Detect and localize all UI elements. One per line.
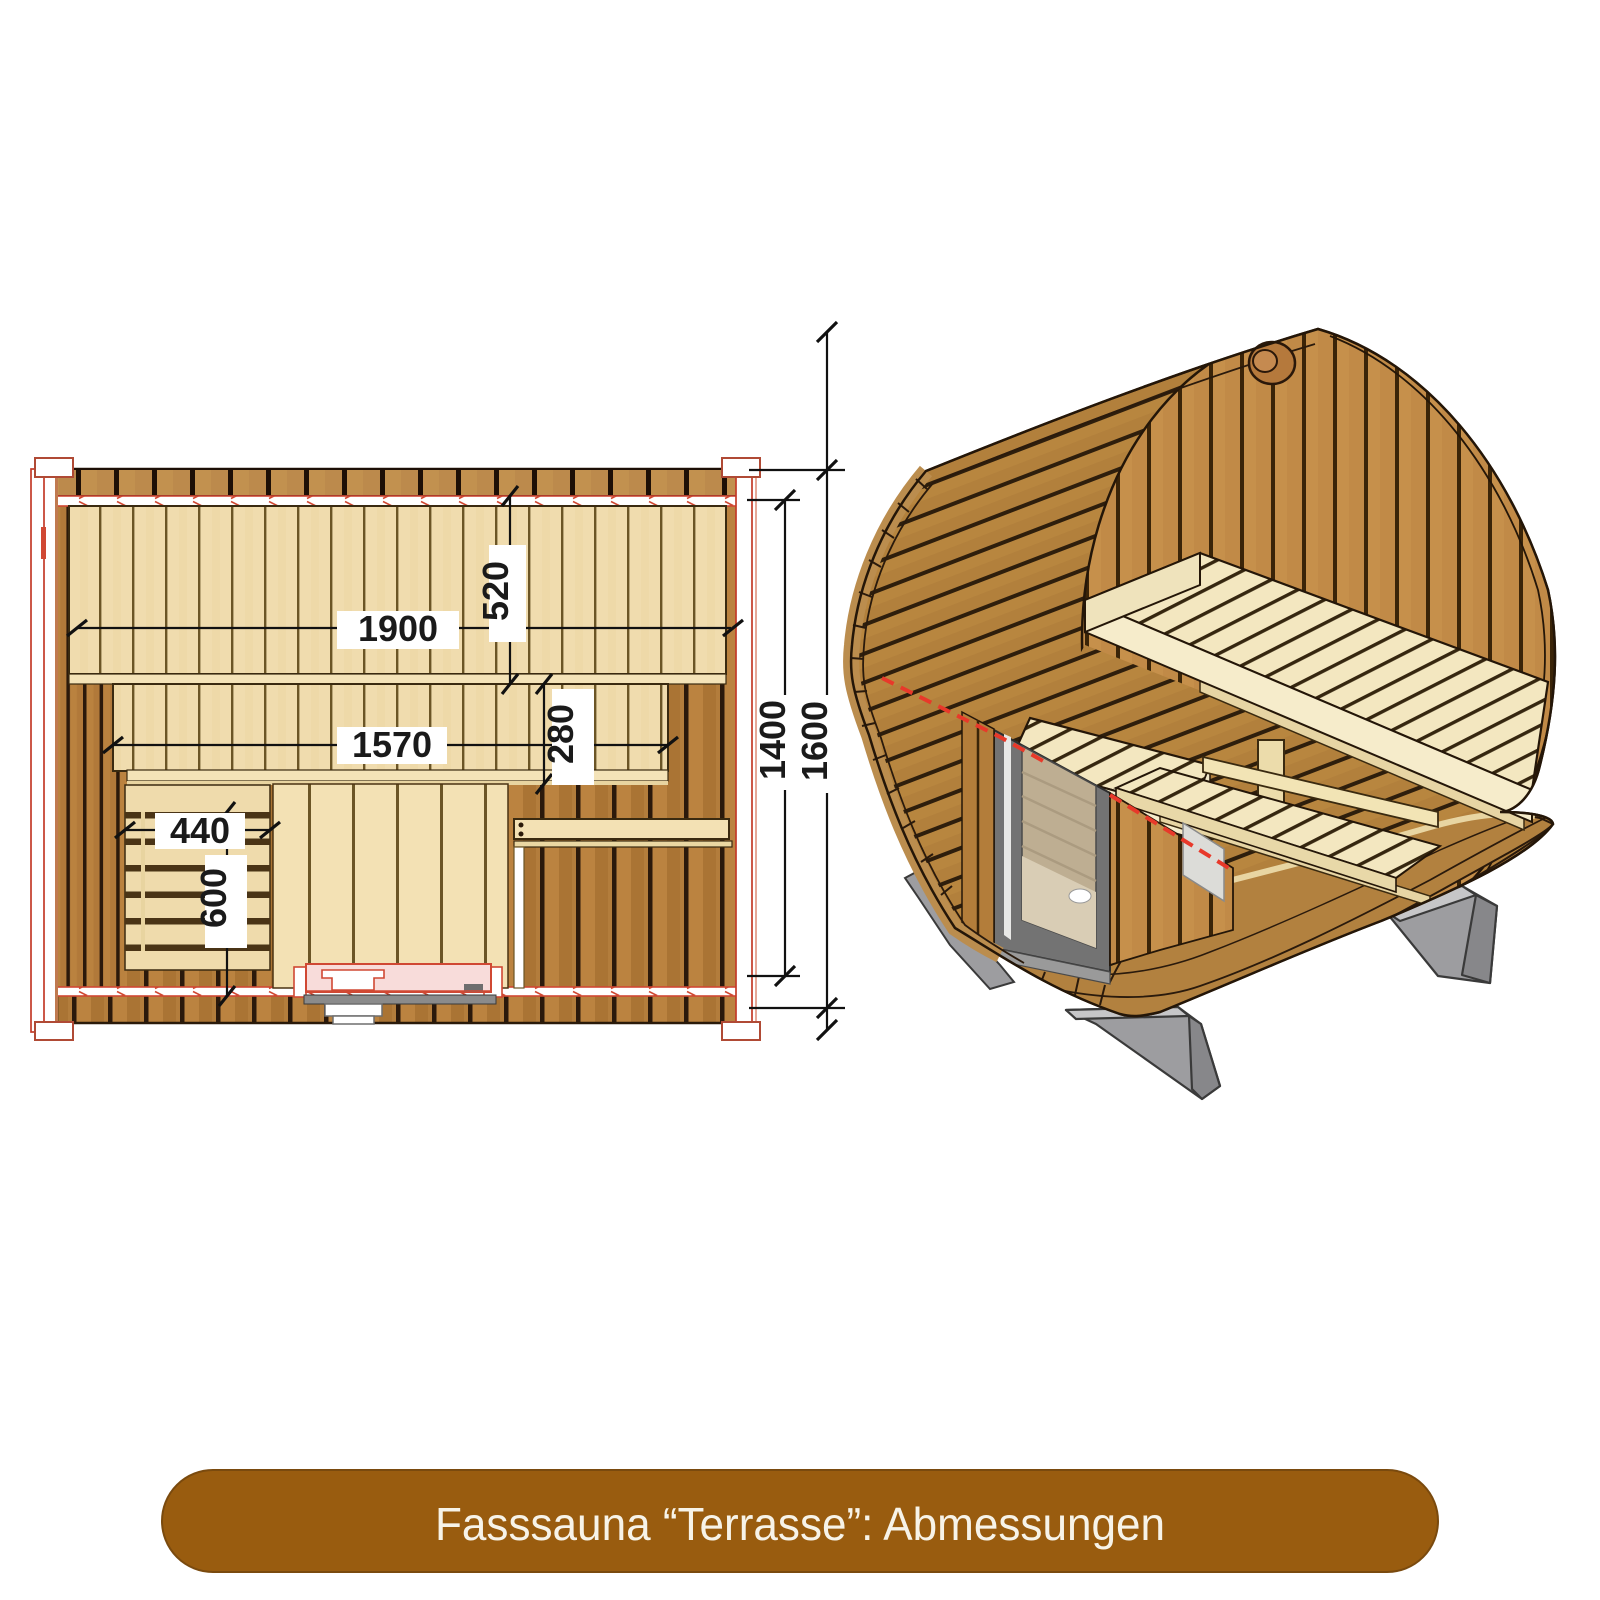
- svg-text:1400: 1400: [752, 700, 793, 780]
- svg-text:440: 440: [170, 810, 230, 851]
- svg-text:Fasssauna “Terrasse”: Abmessun: Fasssauna “Terrasse”: Abmessungen: [435, 1498, 1165, 1550]
- svg-text:1900: 1900: [358, 608, 438, 649]
- svg-text:600: 600: [193, 868, 234, 928]
- svg-text:520: 520: [475, 561, 516, 621]
- svg-text:1570: 1570: [352, 724, 432, 765]
- svg-text:280: 280: [540, 704, 581, 764]
- svg-text:1600: 1600: [794, 701, 835, 781]
